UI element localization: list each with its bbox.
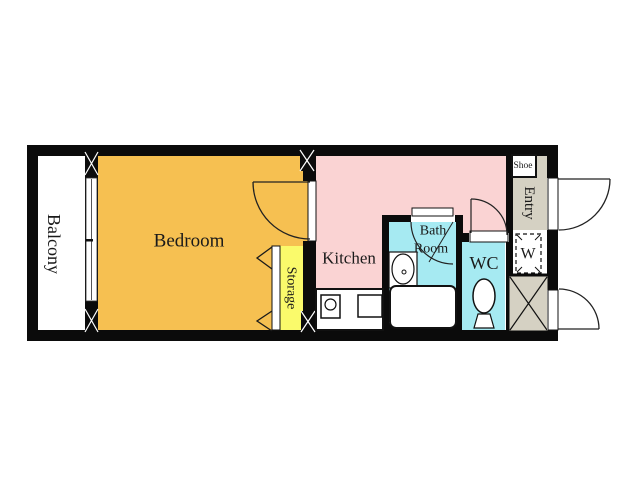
storage-folding-door — [272, 246, 280, 330]
bathroom-label-line2: Room — [414, 242, 448, 257]
wall-left — [27, 145, 38, 341]
floor-plan: Balcony Bedroom Storage Kitchen Bath Roo… — [0, 0, 640, 480]
column-symbol — [301, 311, 315, 332]
shoe-cabinet-label: Shoe — [514, 161, 533, 171]
burner-icon — [325, 299, 336, 310]
entry-label: Entry — [521, 186, 537, 220]
column-symbol — [85, 152, 98, 175]
storage-label: Storage — [284, 267, 299, 310]
bathtub-icon — [390, 286, 456, 328]
sliding-window — [86, 178, 97, 301]
kitchen-counter — [316, 289, 383, 330]
washer-space-label: W — [520, 246, 536, 263]
wall-bottom — [27, 330, 558, 341]
balcony-label: Balcony — [44, 214, 64, 274]
room-kitchen-upper — [316, 156, 506, 215]
bedroom-label: Bedroom — [154, 231, 225, 252]
bathroom-label-line1: Bath — [420, 224, 446, 239]
room-kitchen-hall — [463, 215, 506, 233]
wall-top — [27, 145, 558, 156]
kitchen-label: Kitchen — [322, 249, 376, 268]
wc-label: WC — [470, 253, 499, 273]
floor-plan-drawing: Balcony Bedroom Storage Kitchen Bath Roo… — [0, 0, 640, 480]
toilet-icon — [473, 279, 495, 328]
sink-icon — [358, 295, 382, 317]
column-symbol — [85, 309, 98, 332]
washbasin — [389, 252, 417, 288]
column-symbol — [300, 150, 314, 171]
utility-box — [508, 275, 549, 332]
